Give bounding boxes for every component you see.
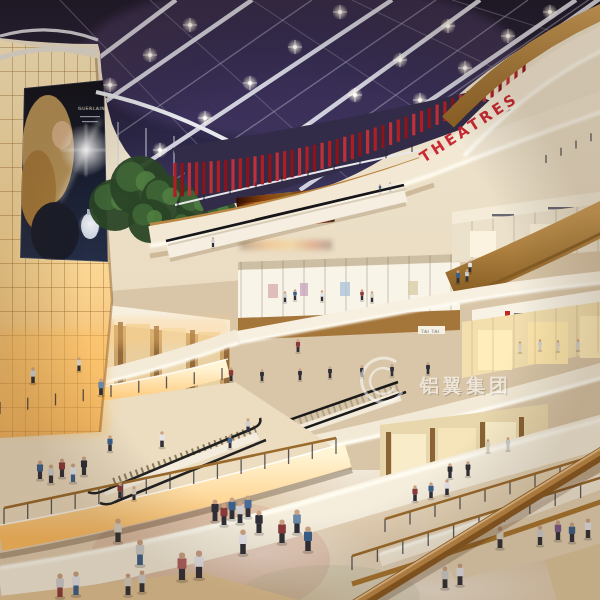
rendering-canvas: GUERLAIN — [0, 0, 600, 600]
vignette — [0, 0, 600, 600]
mall-atrium-rendering: GUERLAIN — [0, 0, 600, 600]
